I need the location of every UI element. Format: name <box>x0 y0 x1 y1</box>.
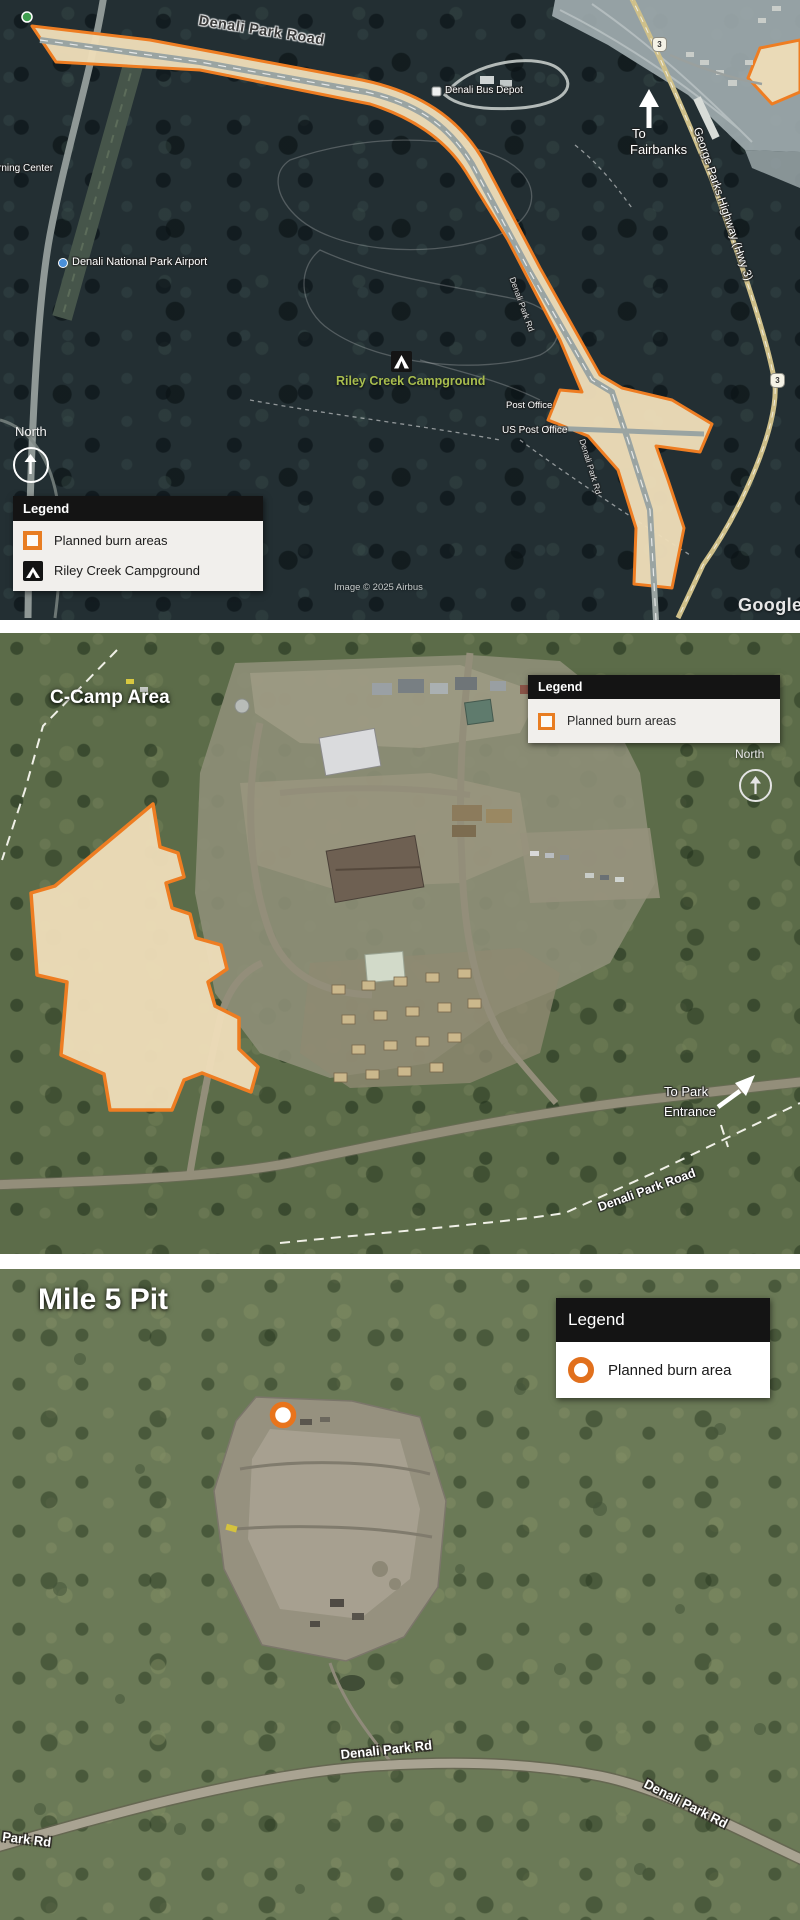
legend-item-campground: Riley Creek Campground <box>13 561 263 581</box>
airport-pin-icon <box>59 259 68 268</box>
legend-title: Legend <box>528 675 780 699</box>
burn-area-swatch-icon <box>538 713 555 730</box>
legend-item-burn-areas: Planned burn areas <box>528 713 780 730</box>
burn-area-swatch-icon <box>23 531 42 550</box>
overview-legend: Legend Planned burn areas Riley Creek Ca… <box>13 496 263 591</box>
trailhead-marker-icon <box>22 12 32 22</box>
route-3-shield-icon: 3 <box>652 37 667 52</box>
north-label: North <box>735 748 764 762</box>
google-watermark: Google E <box>738 595 800 616</box>
us-post-office-label: US Post Office <box>502 425 567 437</box>
parking-lot <box>520 828 660 903</box>
gravel-pit-inner <box>248 1429 420 1619</box>
planned-burn-marker-icon <box>273 1405 294 1426</box>
to-fairbanks-label-line1: To <box>632 127 646 142</box>
ccamp-map-panel: C-Camp Area Legend Planned burn areas No… <box>0 633 800 1254</box>
ccamp-legend: Legend Planned burn areas <box>528 675 780 743</box>
north-arrow-glyph <box>741 771 770 800</box>
bus-depot-label: Denali Bus Depot <box>445 85 523 97</box>
river-arm <box>745 150 800 188</box>
campground-tent-icon <box>23 561 43 581</box>
legend-item-burn-areas: Planned burn areas <box>13 531 263 550</box>
legend-title: Legend <box>13 496 263 521</box>
north-arrow-icon <box>739 769 772 802</box>
mile5-title: Mile 5 Pit <box>38 1283 168 1317</box>
ccamp-title: C-Camp Area <box>50 687 170 709</box>
denali-park-road <box>0 1763 800 1861</box>
legend-title: Legend <box>556 1298 770 1342</box>
north-label: North <box>15 425 47 440</box>
to-park-entrance-label-line1: To Park <box>664 1085 708 1100</box>
route-3-shield-icon: 3 <box>770 373 785 388</box>
legend-item-label: Planned burn areas <box>567 714 676 728</box>
post-office-label: Post Office <box>506 401 552 412</box>
airport-label: Denali National Park Airport <box>72 256 207 269</box>
burn-area-ring-icon <box>568 1357 594 1383</box>
campground-loop-roads <box>278 140 557 400</box>
to-fairbanks-label-line2: Fairbanks <box>630 143 687 158</box>
mile5-map-panel: Mile 5 Pit Legend Planned burn area Dena… <box>0 1269 800 1920</box>
legend-item-label: Planned burn area <box>608 1362 731 1379</box>
burn-areas-map-composite: Denali Park Road rning Center Denali Nat… <box>0 0 800 1920</box>
to-fairbanks-arrow-icon <box>639 89 659 128</box>
legend-item-label: Riley Creek Campground <box>54 563 200 578</box>
legend-item-burn-area: Planned burn area <box>556 1357 770 1383</box>
pond <box>339 1675 365 1691</box>
mile5-legend: Legend Planned burn area <box>556 1298 770 1398</box>
bus-depot-icon <box>432 87 441 96</box>
campground-label: Riley Creek Campground <box>336 374 485 388</box>
north-arrow-icon <box>13 447 49 483</box>
learning-center-partial-label: rning Center <box>0 163 53 175</box>
north-arrow-glyph <box>15 449 46 480</box>
to-park-entrance-label-line2: Entrance <box>664 1105 716 1120</box>
campground-tent-icon <box>391 351 412 372</box>
overview-map-panel: Denali Park Road rning Center Denali Nat… <box>0 0 800 620</box>
imagery-credit: Image © 2025 Airbus <box>334 583 423 594</box>
legend-item-label: Planned burn areas <box>54 533 167 548</box>
